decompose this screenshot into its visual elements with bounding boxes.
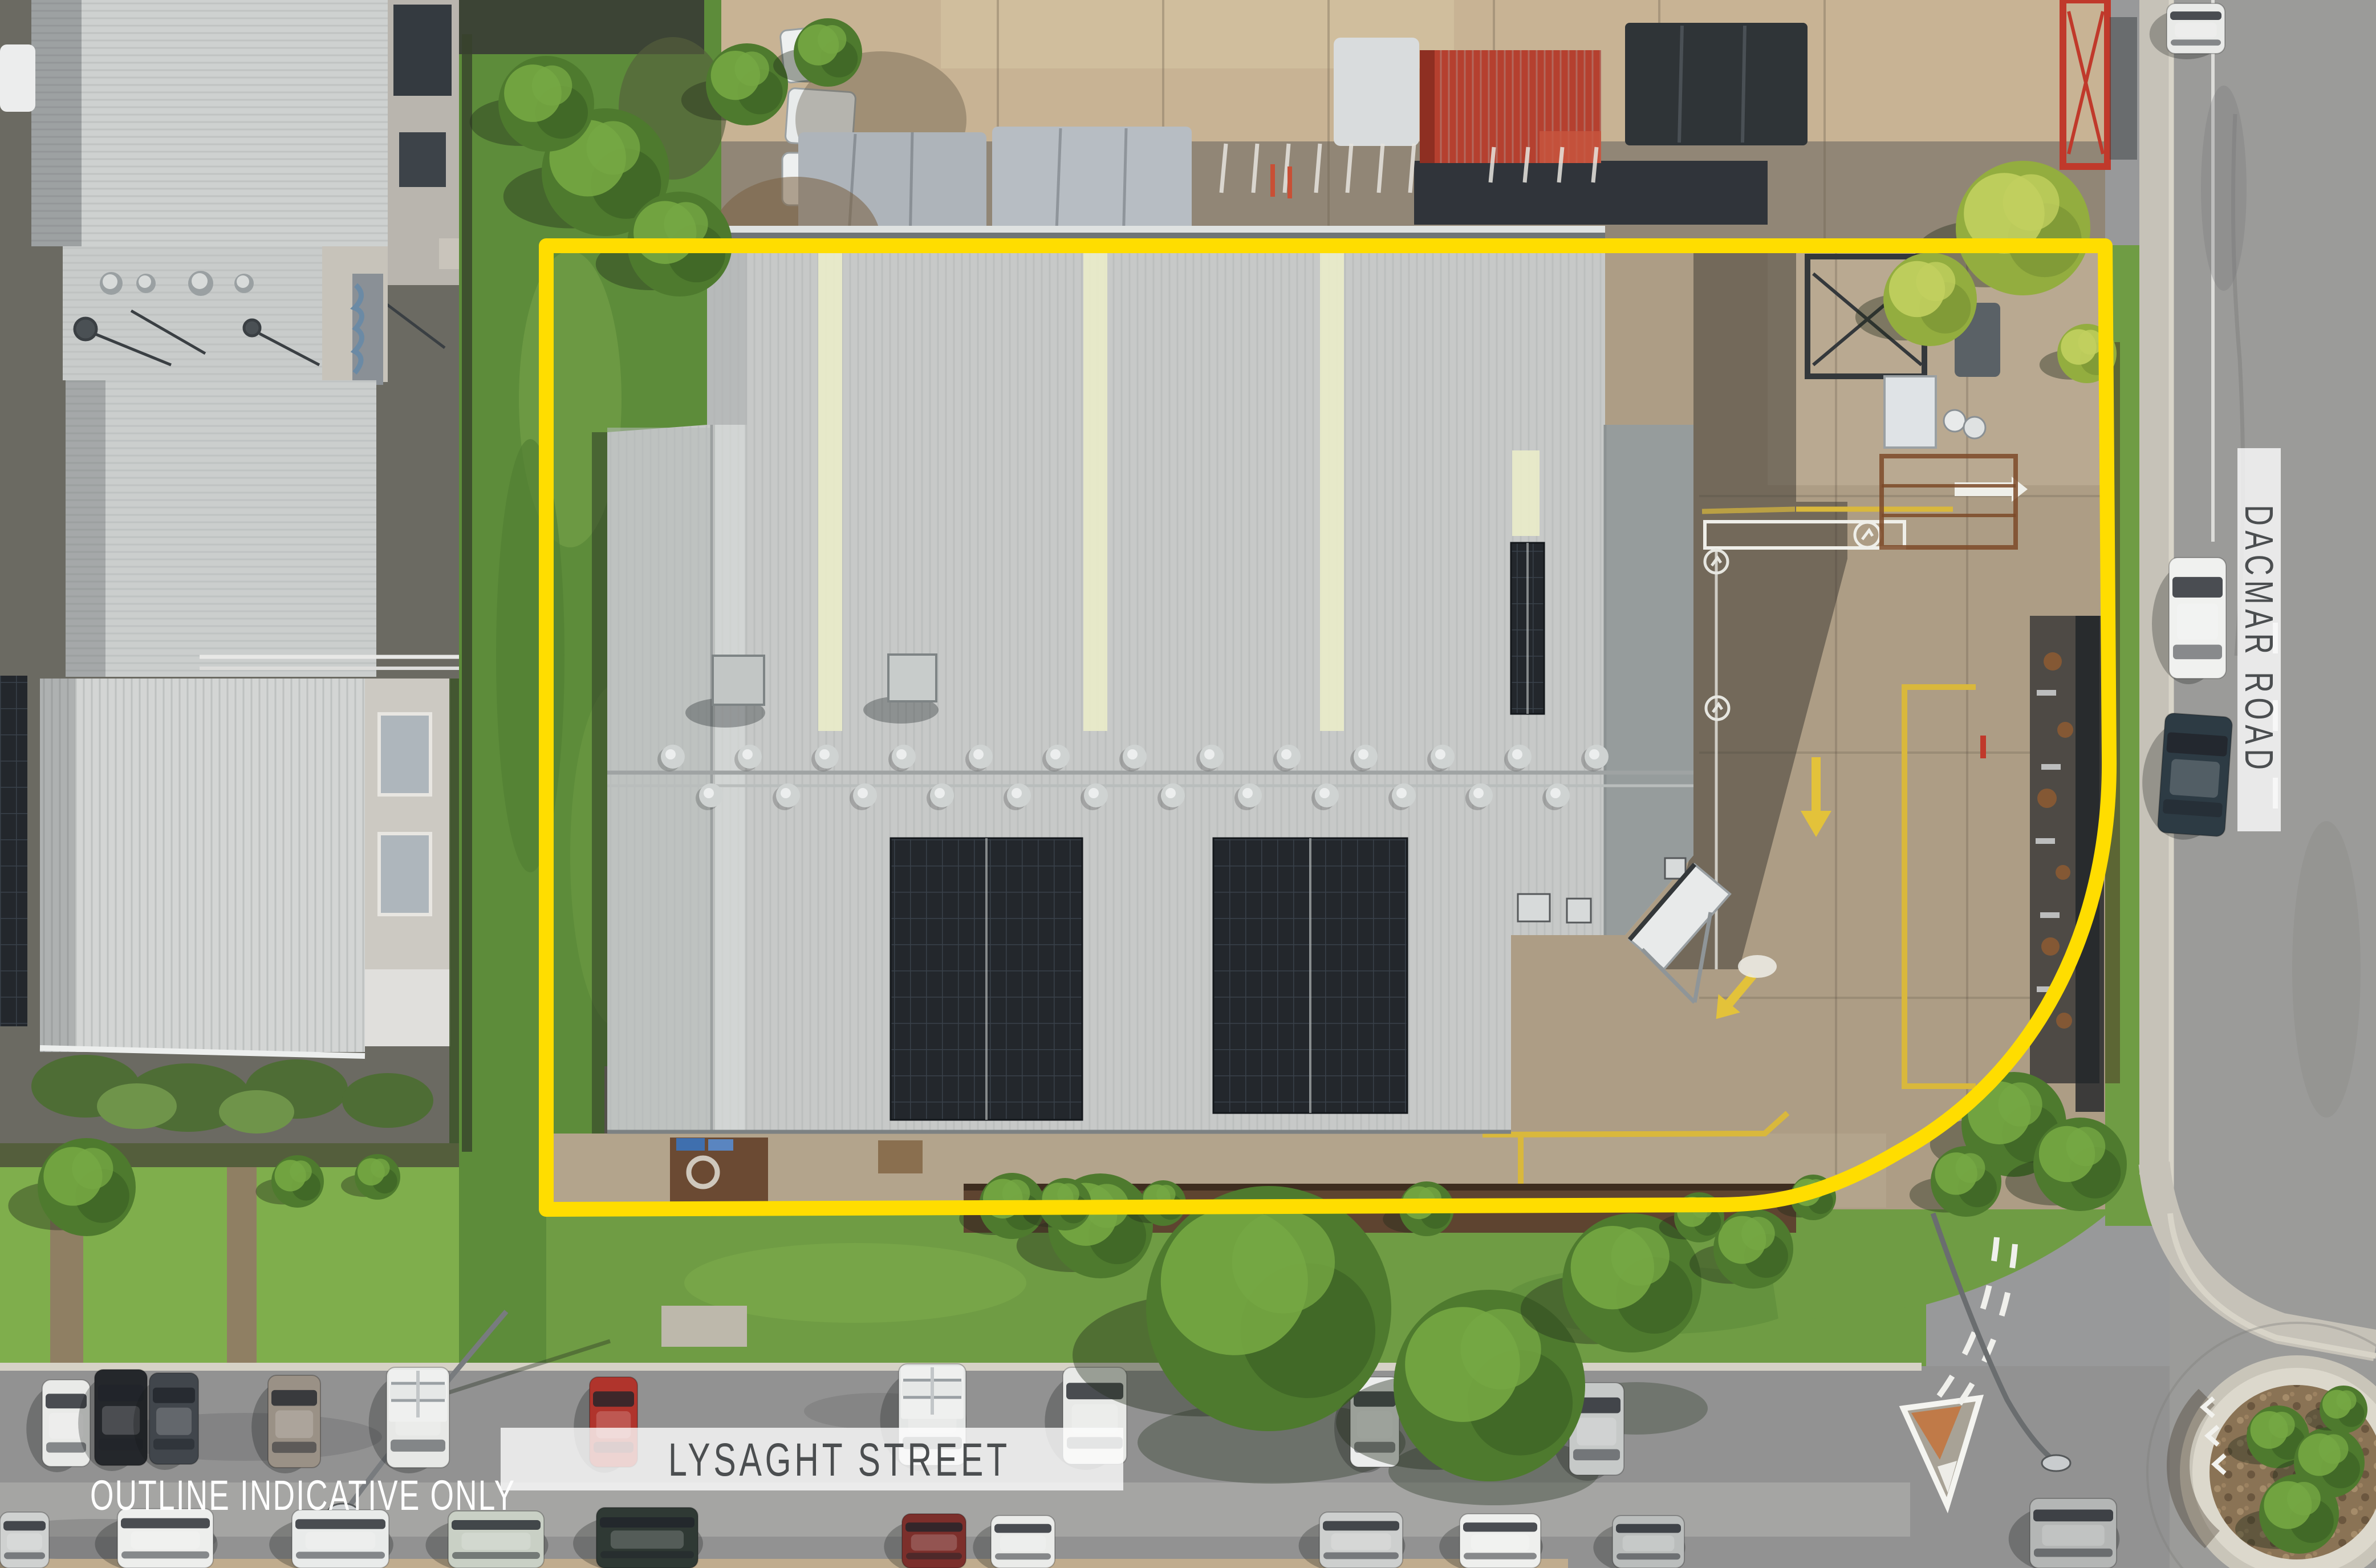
skylight-strip — [1083, 246, 1107, 731]
window — [379, 714, 430, 795]
skylight-strip — [1320, 246, 1344, 731]
solar-strip — [0, 676, 27, 1026]
window — [399, 132, 446, 187]
parked-car — [0, 1512, 49, 1568]
aerial-photo: LYSAGHT STREET DACMAR ROAD OUTLINE INDIC… — [0, 0, 2376, 1568]
red-shipping-container — [1420, 50, 1601, 163]
dacmar-road-label: DACMAR ROAD — [2237, 505, 2281, 774]
lysaght-street-label: LYSAGHT STREET — [668, 1434, 1010, 1486]
concrete-pad — [661, 1306, 747, 1347]
skylight-strip — [818, 246, 842, 731]
aerial-photo-canvas: LYSAGHT STREET DACMAR ROAD OUTLINE INDIC… — [0, 0, 2376, 1568]
window — [393, 5, 452, 96]
white-vehicle — [0, 44, 35, 112]
skylight-strip — [1512, 450, 1540, 536]
window — [379, 834, 430, 915]
garden-path — [227, 1167, 257, 1367]
disclaimer-text: OUTLINE INDICATIVE ONLY — [90, 1472, 515, 1519]
